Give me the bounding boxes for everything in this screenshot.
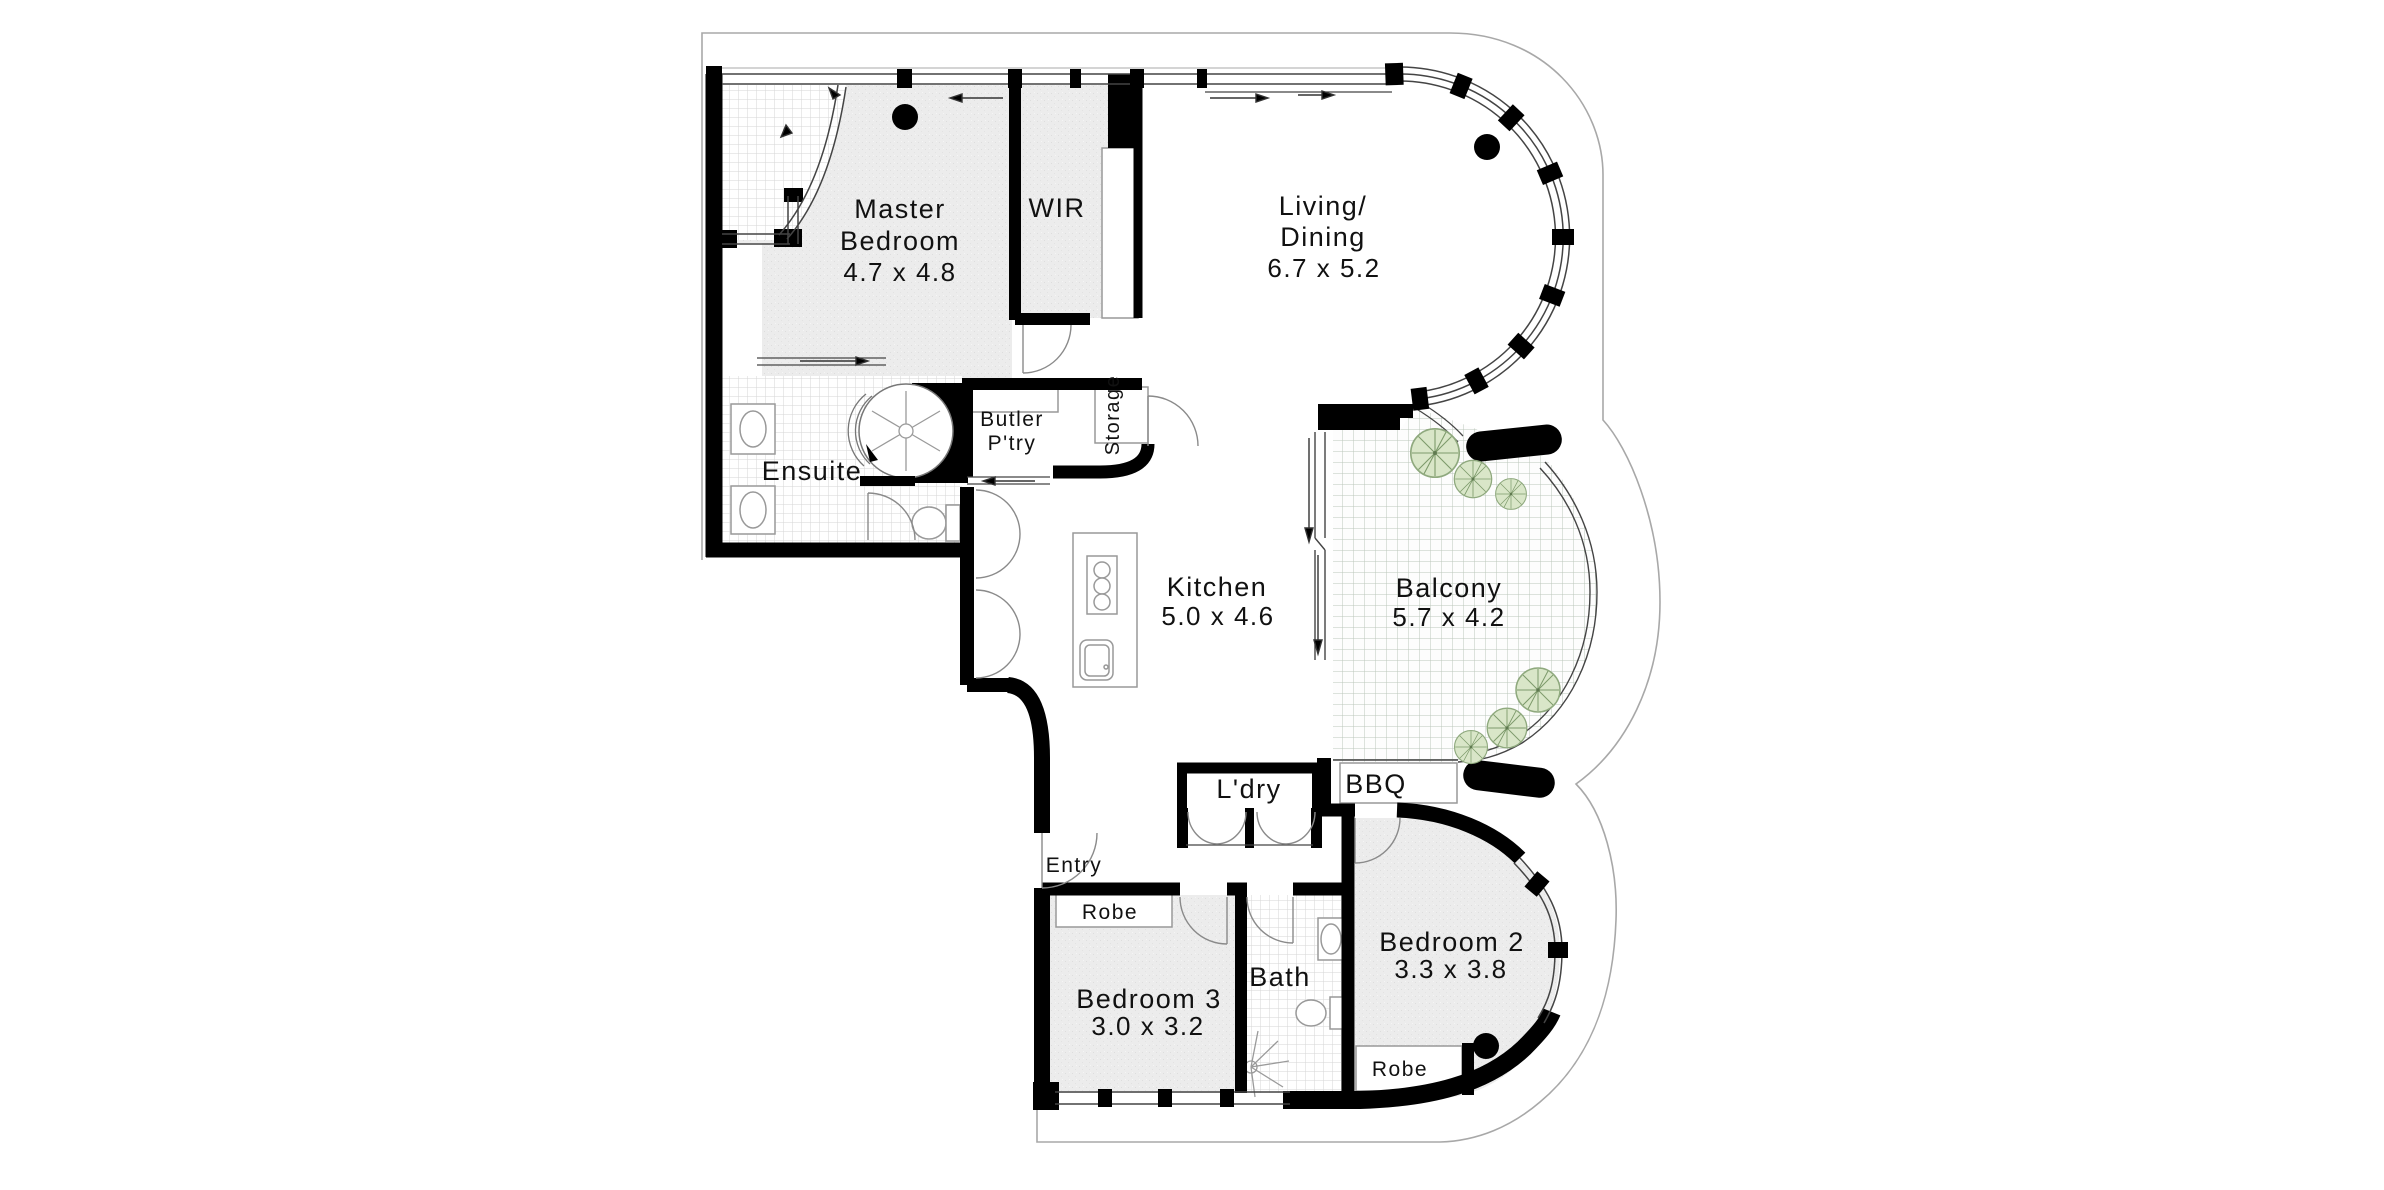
master-bedroom-label-2: Bedroom	[840, 226, 960, 256]
bedroom2-robe-label: Robe	[1372, 1058, 1428, 1081]
bedroom2-dims: 3.3 x 3.8	[1394, 954, 1507, 984]
kitchen-dims: 5.0 x 4.6	[1161, 601, 1274, 631]
wir-closet	[1102, 148, 1138, 318]
storage-label: Storage	[1102, 375, 1124, 456]
ensuite-toilet	[912, 505, 960, 541]
kitchen-island	[1073, 533, 1137, 687]
living-dining-label-2: Dining	[1280, 222, 1366, 252]
bedroom3-robe-label: Robe	[1082, 901, 1138, 924]
balcony-label: Balcony	[1396, 573, 1503, 603]
bbq-label: BBQ	[1345, 769, 1407, 799]
floorplan-drawing: Master Bedroom 4.7 x 4.8 WIR Living/ Din…	[0, 0, 2384, 1190]
balcony-dims: 5.7 x 4.2	[1392, 602, 1505, 632]
ensuite-label: Ensuite	[762, 456, 863, 486]
column-master	[892, 104, 918, 130]
bath-basin	[1318, 918, 1343, 960]
bath-toilet	[1296, 997, 1344, 1029]
master-side-nook	[718, 243, 762, 363]
butler-pantry-label: Butler	[980, 408, 1044, 431]
master-bedroom-label: Master	[854, 194, 946, 224]
living-dining-label: Living/	[1279, 191, 1368, 221]
bath-label: Bath	[1249, 962, 1311, 992]
master-bedroom-dims: 4.7 x 4.8	[843, 257, 956, 287]
living-dining-dims: 6.7 x 5.2	[1267, 253, 1380, 283]
butler-pantry-label-2: P'try	[988, 432, 1037, 455]
floorplan-page: Master Bedroom 4.7 x 4.8 WIR Living/ Din…	[0, 0, 2384, 1190]
kitchen-label: Kitchen	[1167, 572, 1268, 602]
bedroom3-dims: 3.0 x 3.2	[1091, 1011, 1204, 1041]
bedroom3-label: Bedroom 3	[1076, 984, 1222, 1014]
wir-label: WIR	[1029, 193, 1086, 223]
bedroom2-label: Bedroom 2	[1379, 927, 1525, 957]
laundry-label: L'dry	[1216, 774, 1281, 804]
column-bedroom2	[1473, 1033, 1499, 1059]
column-living	[1474, 134, 1500, 160]
entry-label: Entry	[1046, 854, 1103, 877]
